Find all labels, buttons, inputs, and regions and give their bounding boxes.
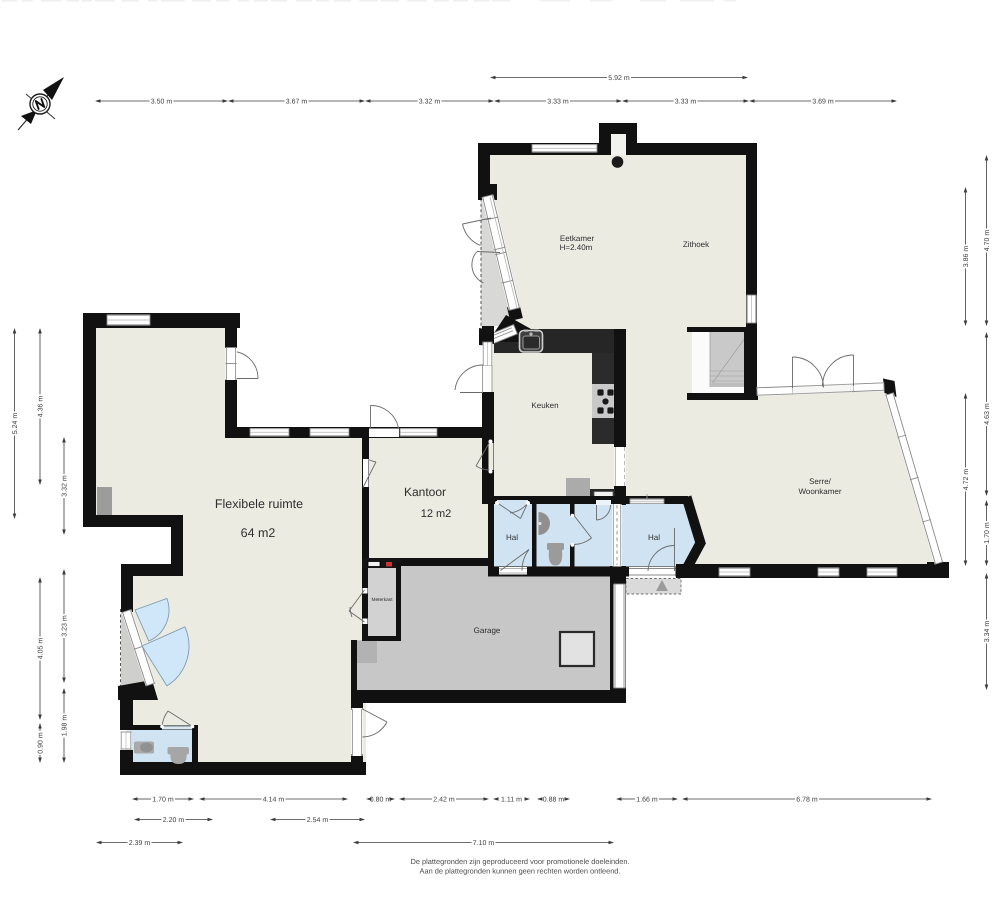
svg-text:3.32 m: 3.32 m — [419, 98, 441, 105]
svg-text:7.10 m: 7.10 m — [473, 840, 495, 847]
svg-text:2.20 m: 2.20 m — [163, 817, 185, 824]
svg-text:3.86 m: 3.86 m — [963, 246, 970, 268]
svg-text:Keuken: Keuken — [531, 401, 558, 410]
svg-text:Flexibele ruimte: Flexibele ruimte — [215, 497, 303, 511]
svg-text:3.23 m: 3.23 m — [61, 615, 68, 637]
svg-text:1.66 m: 1.66 m — [636, 796, 658, 803]
svg-text:2.42 m: 2.42 m — [433, 796, 455, 803]
svg-text:5.24 m: 5.24 m — [12, 413, 19, 435]
svg-text:1.11 m: 1.11 m — [501, 796, 522, 803]
svg-text:4.70 m: 4.70 m — [984, 230, 991, 252]
svg-text:0.90 m: 0.90 m — [37, 732, 44, 754]
svg-text:12 m2: 12 m2 — [421, 508, 452, 520]
svg-text:3.67 m: 3.67 m — [286, 98, 308, 105]
svg-text:Woonkamer: Woonkamer — [799, 487, 842, 496]
svg-text:3.33 m: 3.33 m — [675, 98, 697, 105]
svg-text:4.05 m: 4.05 m — [37, 638, 44, 660]
svg-text:4.72 m: 4.72 m — [963, 469, 970, 491]
svg-text:1.70 m: 1.70 m — [984, 522, 991, 544]
svg-text:0.88 m: 0.88 m — [543, 796, 565, 803]
svg-text:Kantoor: Kantoor — [404, 485, 446, 499]
svg-text:1.98 m: 1.98 m — [61, 715, 68, 737]
svg-text:3.33 m: 3.33 m — [547, 98, 569, 105]
svg-text:4.36 m: 4.36 m — [37, 396, 44, 418]
svg-text:3.69 m: 3.69 m — [812, 98, 834, 105]
svg-text:Zithoek: Zithoek — [683, 240, 710, 249]
svg-text:3.34 m: 3.34 m — [984, 621, 991, 643]
svg-text:4.14 m: 4.14 m — [263, 796, 285, 803]
svg-text:0.80 m: 0.80 m — [370, 796, 392, 803]
svg-text:Hal: Hal — [648, 533, 660, 542]
svg-text:H=2.40m: H=2.40m — [560, 243, 593, 252]
svg-text:Garage: Garage — [474, 626, 501, 635]
svg-text:5.92 m: 5.92 m — [608, 75, 630, 82]
svg-text:Aan de plattegronden kunnen ge: Aan de plattegronden kunnen geen rechten… — [420, 867, 621, 876]
svg-text:Serre/: Serre/ — [809, 477, 832, 486]
svg-text:3.32 m: 3.32 m — [61, 475, 68, 497]
svg-text:3.50 m: 3.50 m — [151, 98, 173, 105]
svg-text:1.70 m: 1.70 m — [152, 796, 174, 803]
svg-text:64 m2: 64 m2 — [241, 526, 276, 540]
svg-text:Hal: Hal — [506, 533, 518, 542]
svg-text:Eetkamer: Eetkamer — [560, 234, 595, 243]
svg-text:De plattegronden zijn geproduc: De plattegronden zijn geproduceerd voor … — [411, 857, 630, 866]
svg-text:4.63 m: 4.63 m — [984, 403, 991, 425]
svg-text:2.39 m: 2.39 m — [129, 840, 151, 847]
svg-text:Meterkast: Meterkast — [371, 597, 393, 603]
svg-text:2.54 m: 2.54 m — [307, 817, 329, 824]
svg-text:6.78 m: 6.78 m — [796, 796, 818, 803]
